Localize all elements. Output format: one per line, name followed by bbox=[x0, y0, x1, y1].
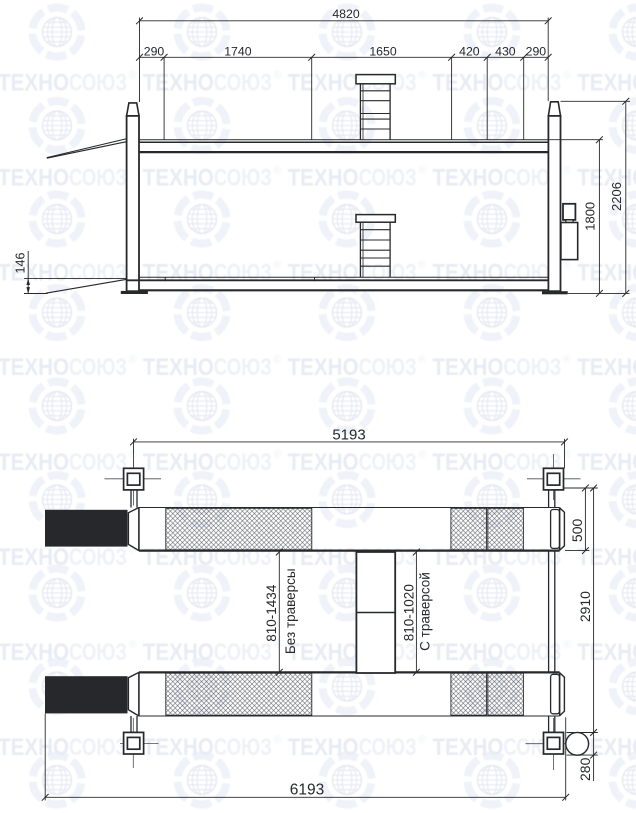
svg-text:СОЮЗ: СОЮЗ bbox=[359, 259, 417, 286]
svg-text:СОЮЗ: СОЮЗ bbox=[214, 70, 272, 97]
svg-text:СОЮЗ: СОЮЗ bbox=[69, 164, 127, 191]
svg-text:®: ® bbox=[418, 734, 426, 746]
svg-text:ТЕХНО: ТЕХНО bbox=[432, 259, 503, 286]
svg-text:ТЕХНО: ТЕХНО bbox=[288, 259, 359, 286]
svg-text:СОЮЗ: СОЮЗ bbox=[69, 259, 127, 286]
svg-text:®: ® bbox=[273, 734, 281, 746]
svg-text:ТЕХНО: ТЕХНО bbox=[288, 449, 359, 476]
svg-text:СОЮЗ: СОЮЗ bbox=[359, 449, 417, 476]
svg-text:®: ® bbox=[129, 639, 137, 651]
svg-text:СОЮЗ: СОЮЗ bbox=[214, 259, 272, 286]
svg-text:СОЮЗ: СОЮЗ bbox=[69, 734, 127, 761]
svg-text:СОЮЗ: СОЮЗ bbox=[69, 354, 127, 381]
svg-text:ТЕХНО: ТЕХНО bbox=[0, 734, 69, 761]
svg-text:ТЕХНО: ТЕХНО bbox=[577, 70, 636, 97]
svg-text:®: ® bbox=[273, 449, 281, 461]
svg-text:®: ® bbox=[563, 259, 571, 271]
svg-text:ТЕХНО: ТЕХНО bbox=[577, 449, 636, 476]
svg-text:СОЮЗ: СОЮЗ bbox=[359, 354, 417, 381]
svg-text:СОЮЗ: СОЮЗ bbox=[214, 449, 272, 476]
svg-text:ТЕХНО: ТЕХНО bbox=[0, 354, 69, 381]
svg-text:СОЮЗ: СОЮЗ bbox=[503, 639, 561, 666]
svg-text:ТЕХНО: ТЕХНО bbox=[143, 70, 214, 97]
svg-text:ТЕХНО: ТЕХНО bbox=[0, 544, 69, 571]
svg-text:®: ® bbox=[563, 639, 571, 651]
svg-text:®: ® bbox=[273, 164, 281, 176]
svg-text:ТЕХНО: ТЕХНО bbox=[432, 354, 503, 381]
svg-text:810-1434: 810-1434 bbox=[264, 584, 279, 642]
svg-text:СОЮЗ: СОЮЗ bbox=[503, 70, 561, 97]
svg-text:СОЮЗ: СОЮЗ bbox=[69, 449, 127, 476]
svg-text:Без траверсы: Без траверсы bbox=[283, 568, 298, 654]
svg-text:ТЕХНО: ТЕХНО bbox=[0, 639, 69, 666]
svg-text:СОЮЗ: СОЮЗ bbox=[214, 354, 272, 381]
svg-text:1650: 1650 bbox=[369, 44, 397, 58]
svg-text:®: ® bbox=[273, 259, 281, 271]
svg-text:4820: 4820 bbox=[332, 7, 360, 21]
svg-text:500: 500 bbox=[569, 519, 585, 543]
svg-text:®: ® bbox=[129, 449, 137, 461]
svg-text:290: 290 bbox=[144, 44, 165, 58]
svg-text:®: ® bbox=[273, 354, 281, 366]
svg-text:®: ® bbox=[563, 354, 571, 366]
svg-text:ТЕХНО: ТЕХНО bbox=[577, 544, 636, 571]
svg-text:ТЕХНО: ТЕХНО bbox=[288, 639, 359, 666]
svg-text:®: ® bbox=[129, 354, 137, 366]
svg-text:ТЕХНО: ТЕХНО bbox=[432, 639, 503, 666]
svg-text:1800: 1800 bbox=[583, 202, 598, 231]
svg-text:ТЕХНО: ТЕХНО bbox=[577, 164, 636, 191]
svg-text:ТЕХНО: ТЕХНО bbox=[577, 354, 636, 381]
svg-text:®: ® bbox=[273, 70, 281, 82]
svg-text:®: ® bbox=[418, 70, 426, 82]
svg-text:ТЕХНО: ТЕХНО bbox=[0, 259, 69, 286]
svg-text:®: ® bbox=[418, 449, 426, 461]
svg-text:СОЮЗ: СОЮЗ bbox=[214, 164, 272, 191]
svg-text:ТЕХНО: ТЕХНО bbox=[143, 259, 214, 286]
svg-text:С траверсой: С траверсой bbox=[417, 572, 432, 651]
svg-text:290: 290 bbox=[526, 44, 547, 58]
svg-text:6193: 6193 bbox=[290, 782, 324, 799]
svg-text:®: ® bbox=[129, 70, 137, 82]
svg-text:ТЕХНО: ТЕХНО bbox=[577, 259, 636, 286]
svg-text:ТЕХНО: ТЕХНО bbox=[432, 449, 503, 476]
svg-text:2910: 2910 bbox=[577, 591, 593, 622]
svg-text:ТЕХНО: ТЕХНО bbox=[288, 354, 359, 381]
svg-text:ТЕХНО: ТЕХНО bbox=[288, 164, 359, 191]
svg-text:ТЕХНО: ТЕХНО bbox=[288, 70, 359, 97]
svg-text:146: 146 bbox=[14, 253, 28, 274]
svg-text:ТЕХНО: ТЕХНО bbox=[0, 449, 69, 476]
svg-text:ТЕХНО: ТЕХНО bbox=[432, 164, 503, 191]
svg-text:СОЮЗ: СОЮЗ bbox=[214, 639, 272, 666]
svg-text:ТЕХНО: ТЕХНО bbox=[0, 164, 69, 191]
svg-text:СОЮЗ: СОЮЗ bbox=[214, 734, 272, 761]
svg-text:СОЮЗ: СОЮЗ bbox=[69, 639, 127, 666]
svg-text:ТЕХНО: ТЕХНО bbox=[143, 354, 214, 381]
svg-text:СОЮЗ: СОЮЗ bbox=[69, 544, 127, 571]
svg-text:ТЕХНО: ТЕХНО bbox=[143, 734, 214, 761]
svg-text:®: ® bbox=[418, 164, 426, 176]
svg-text:ТЕХНО: ТЕХНО bbox=[0, 70, 69, 97]
svg-text:®: ® bbox=[418, 259, 426, 271]
svg-text:СОЮЗ: СОЮЗ bbox=[69, 70, 127, 97]
svg-text:®: ® bbox=[563, 164, 571, 176]
svg-text:ТЕХНО: ТЕХНО bbox=[143, 164, 214, 191]
svg-text:1740: 1740 bbox=[224, 44, 252, 58]
svg-text:ТЕХНО: ТЕХНО bbox=[432, 70, 503, 97]
svg-text:ТЕХНО: ТЕХНО bbox=[143, 639, 214, 666]
svg-text:СОЮЗ: СОЮЗ bbox=[359, 164, 417, 191]
svg-text:280: 280 bbox=[577, 757, 593, 781]
svg-text:2206: 2206 bbox=[609, 182, 624, 211]
svg-text:ТЕХНО: ТЕХНО bbox=[432, 734, 503, 761]
svg-text:СОЮЗ: СОЮЗ bbox=[359, 734, 417, 761]
svg-text:420: 420 bbox=[459, 44, 480, 58]
svg-text:430: 430 bbox=[495, 44, 516, 58]
svg-text:ТЕХНО: ТЕХНО bbox=[143, 449, 214, 476]
svg-text:®: ® bbox=[418, 354, 426, 366]
svg-text:5193: 5193 bbox=[332, 427, 365, 444]
svg-text:810-1020: 810-1020 bbox=[402, 584, 417, 641]
svg-text:®: ® bbox=[563, 70, 571, 82]
svg-text:ТЕХНО: ТЕХНО bbox=[288, 734, 359, 761]
svg-text:СОЮЗ: СОЮЗ bbox=[503, 354, 561, 381]
svg-text:ТЕХНО: ТЕХНО bbox=[577, 639, 636, 666]
